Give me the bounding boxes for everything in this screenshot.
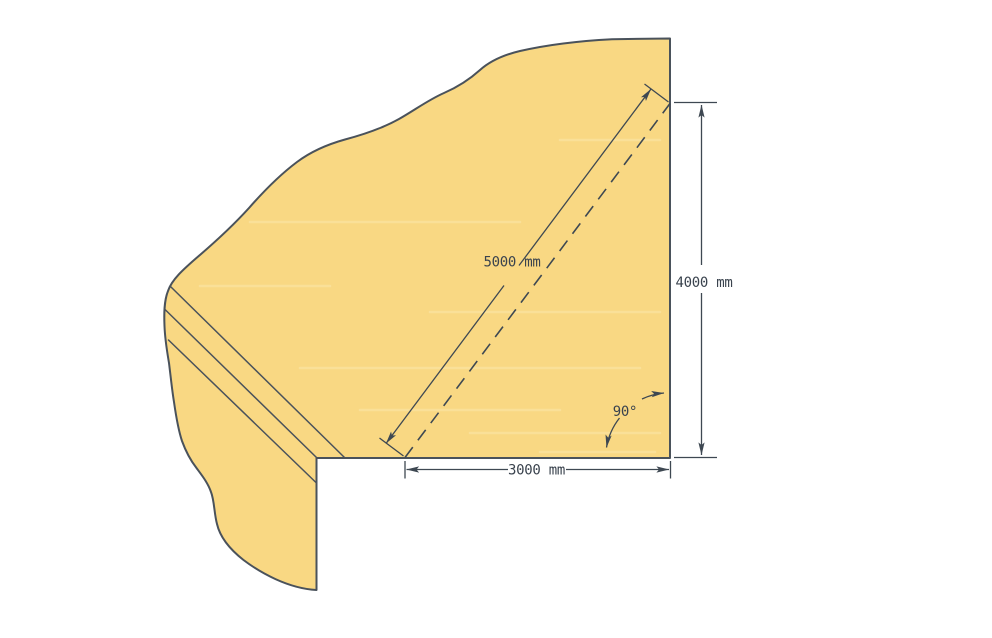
dimension-4000: 4000 mm bbox=[674, 103, 732, 458]
dimension-3000-label: 3000 mm bbox=[508, 463, 565, 479]
dimension-5000-label: 5000 mm bbox=[484, 255, 541, 271]
dimension-3000: 3000 mm bbox=[405, 461, 671, 479]
drawing-canvas: 5000 mm 4000 mm 3000 mm 90° bbox=[0, 0, 992, 638]
technical-drawing-svg: 5000 mm 4000 mm 3000 mm 90° bbox=[0, 0, 992, 638]
angle-label: 90° bbox=[613, 404, 637, 420]
material-surface bbox=[164, 39, 670, 591]
dimension-4000-label: 4000 mm bbox=[676, 275, 733, 291]
